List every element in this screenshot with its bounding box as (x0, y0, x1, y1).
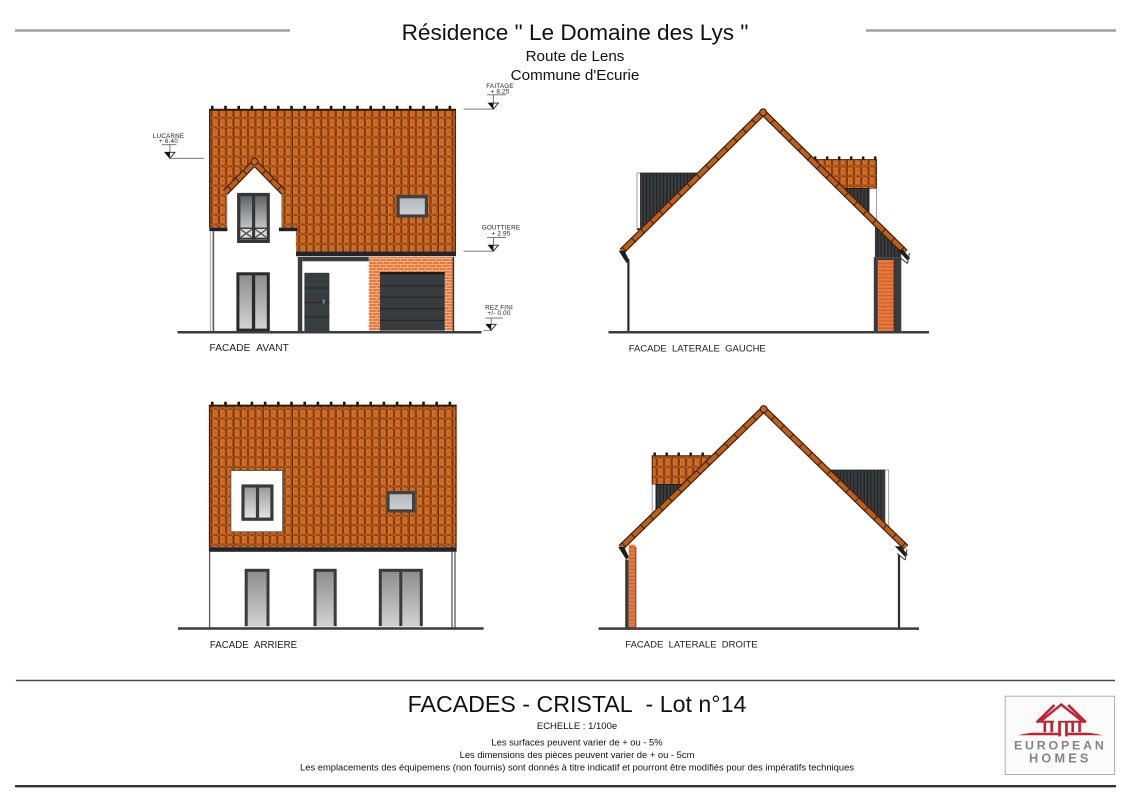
svg-text:HOMES: HOMES (1029, 751, 1092, 765)
svg-text:Les emplacements des équipemen: Les emplacements des équipemens (non fou… (300, 762, 854, 773)
svg-text:Résidence " Le Domaine des Lys: Résidence " Le Domaine des Lys " (402, 20, 749, 45)
svg-text:+ 2.95: + 2.95 (492, 230, 511, 237)
svg-text:FACADE ARRIERE: FACADE ARRIERE (210, 640, 298, 651)
svg-text:FACADES - CRISTAL - Lot n°14: FACADES - CRISTAL - Lot n°14 (408, 691, 747, 717)
svg-text:FACADE AVANT: FACADE AVANT (210, 343, 289, 354)
svg-text:Route de Lens: Route de Lens (526, 48, 625, 65)
svg-text:Les dimensions des pièces peuv: Les dimensions des pièces peuvent varier… (460, 749, 695, 760)
svg-text:FACADE LATERALE GAUCHE: FACADE LATERALE GAUCHE (629, 344, 766, 355)
svg-text:Commune d'Ecurie: Commune d'Ecurie (511, 67, 640, 84)
svg-text:Les surfaces peuvent varier de: Les surfaces peuvent varier de + ou - 5% (491, 737, 662, 748)
svg-text:+/- 0.00: +/- 0.00 (487, 310, 510, 317)
svg-text:ECHELLE : 1/100e: ECHELLE : 1/100e (537, 721, 617, 732)
svg-text:+ 6.40: + 6.40 (159, 138, 178, 145)
svg-text:FACADE LATERALE DROITE: FACADE LATERALE DROITE (625, 640, 757, 651)
